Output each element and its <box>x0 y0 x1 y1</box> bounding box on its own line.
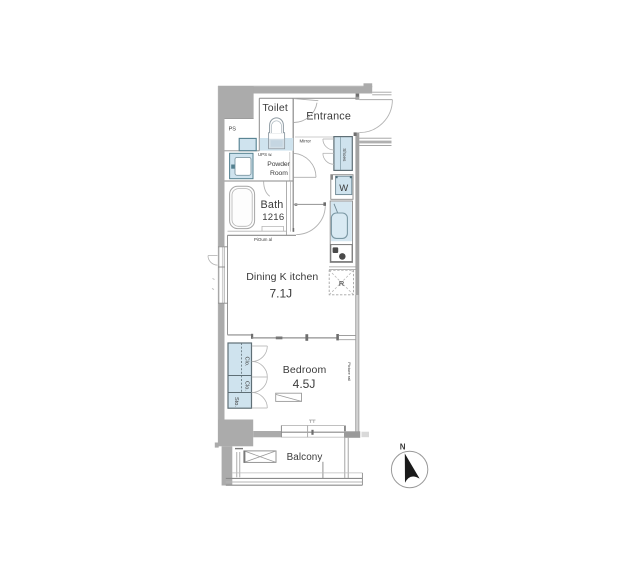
svg-text:Balcony: Balcony <box>287 452 323 463</box>
svg-text:N: N <box>400 443 406 452</box>
svg-text:1216: 1216 <box>262 212 284 223</box>
svg-text:Picture rail: Picture rail <box>347 362 352 381</box>
svg-text:Dining K itchen: Dining K itchen <box>246 271 318 283</box>
svg-text:Bath: Bath <box>260 199 283 211</box>
svg-text:PiOum al: PiOum al <box>254 237 272 242</box>
svg-text:W: W <box>339 183 348 194</box>
svg-text:Clo.: Clo. <box>244 357 250 367</box>
svg-text:Clo.: Clo. <box>244 381 250 391</box>
svg-text:Room: Room <box>270 170 288 177</box>
svg-text:Sto.: Sto. <box>233 397 239 407</box>
svg-text:Shoes: Shoes <box>342 148 347 162</box>
svg-text:UPS w.: UPS w. <box>258 152 272 157</box>
svg-text:4.5J: 4.5J <box>293 377 316 391</box>
svg-text:Mirror: Mirror <box>300 139 312 144</box>
svg-text:R: R <box>339 279 344 288</box>
svg-text:7.1J: 7.1J <box>269 287 292 301</box>
svg-text:Powder: Powder <box>267 161 290 168</box>
svg-text:Bedroom: Bedroom <box>283 364 327 376</box>
svg-text:PS: PS <box>229 126 237 132</box>
svg-text:Toilet: Toilet <box>262 102 288 114</box>
